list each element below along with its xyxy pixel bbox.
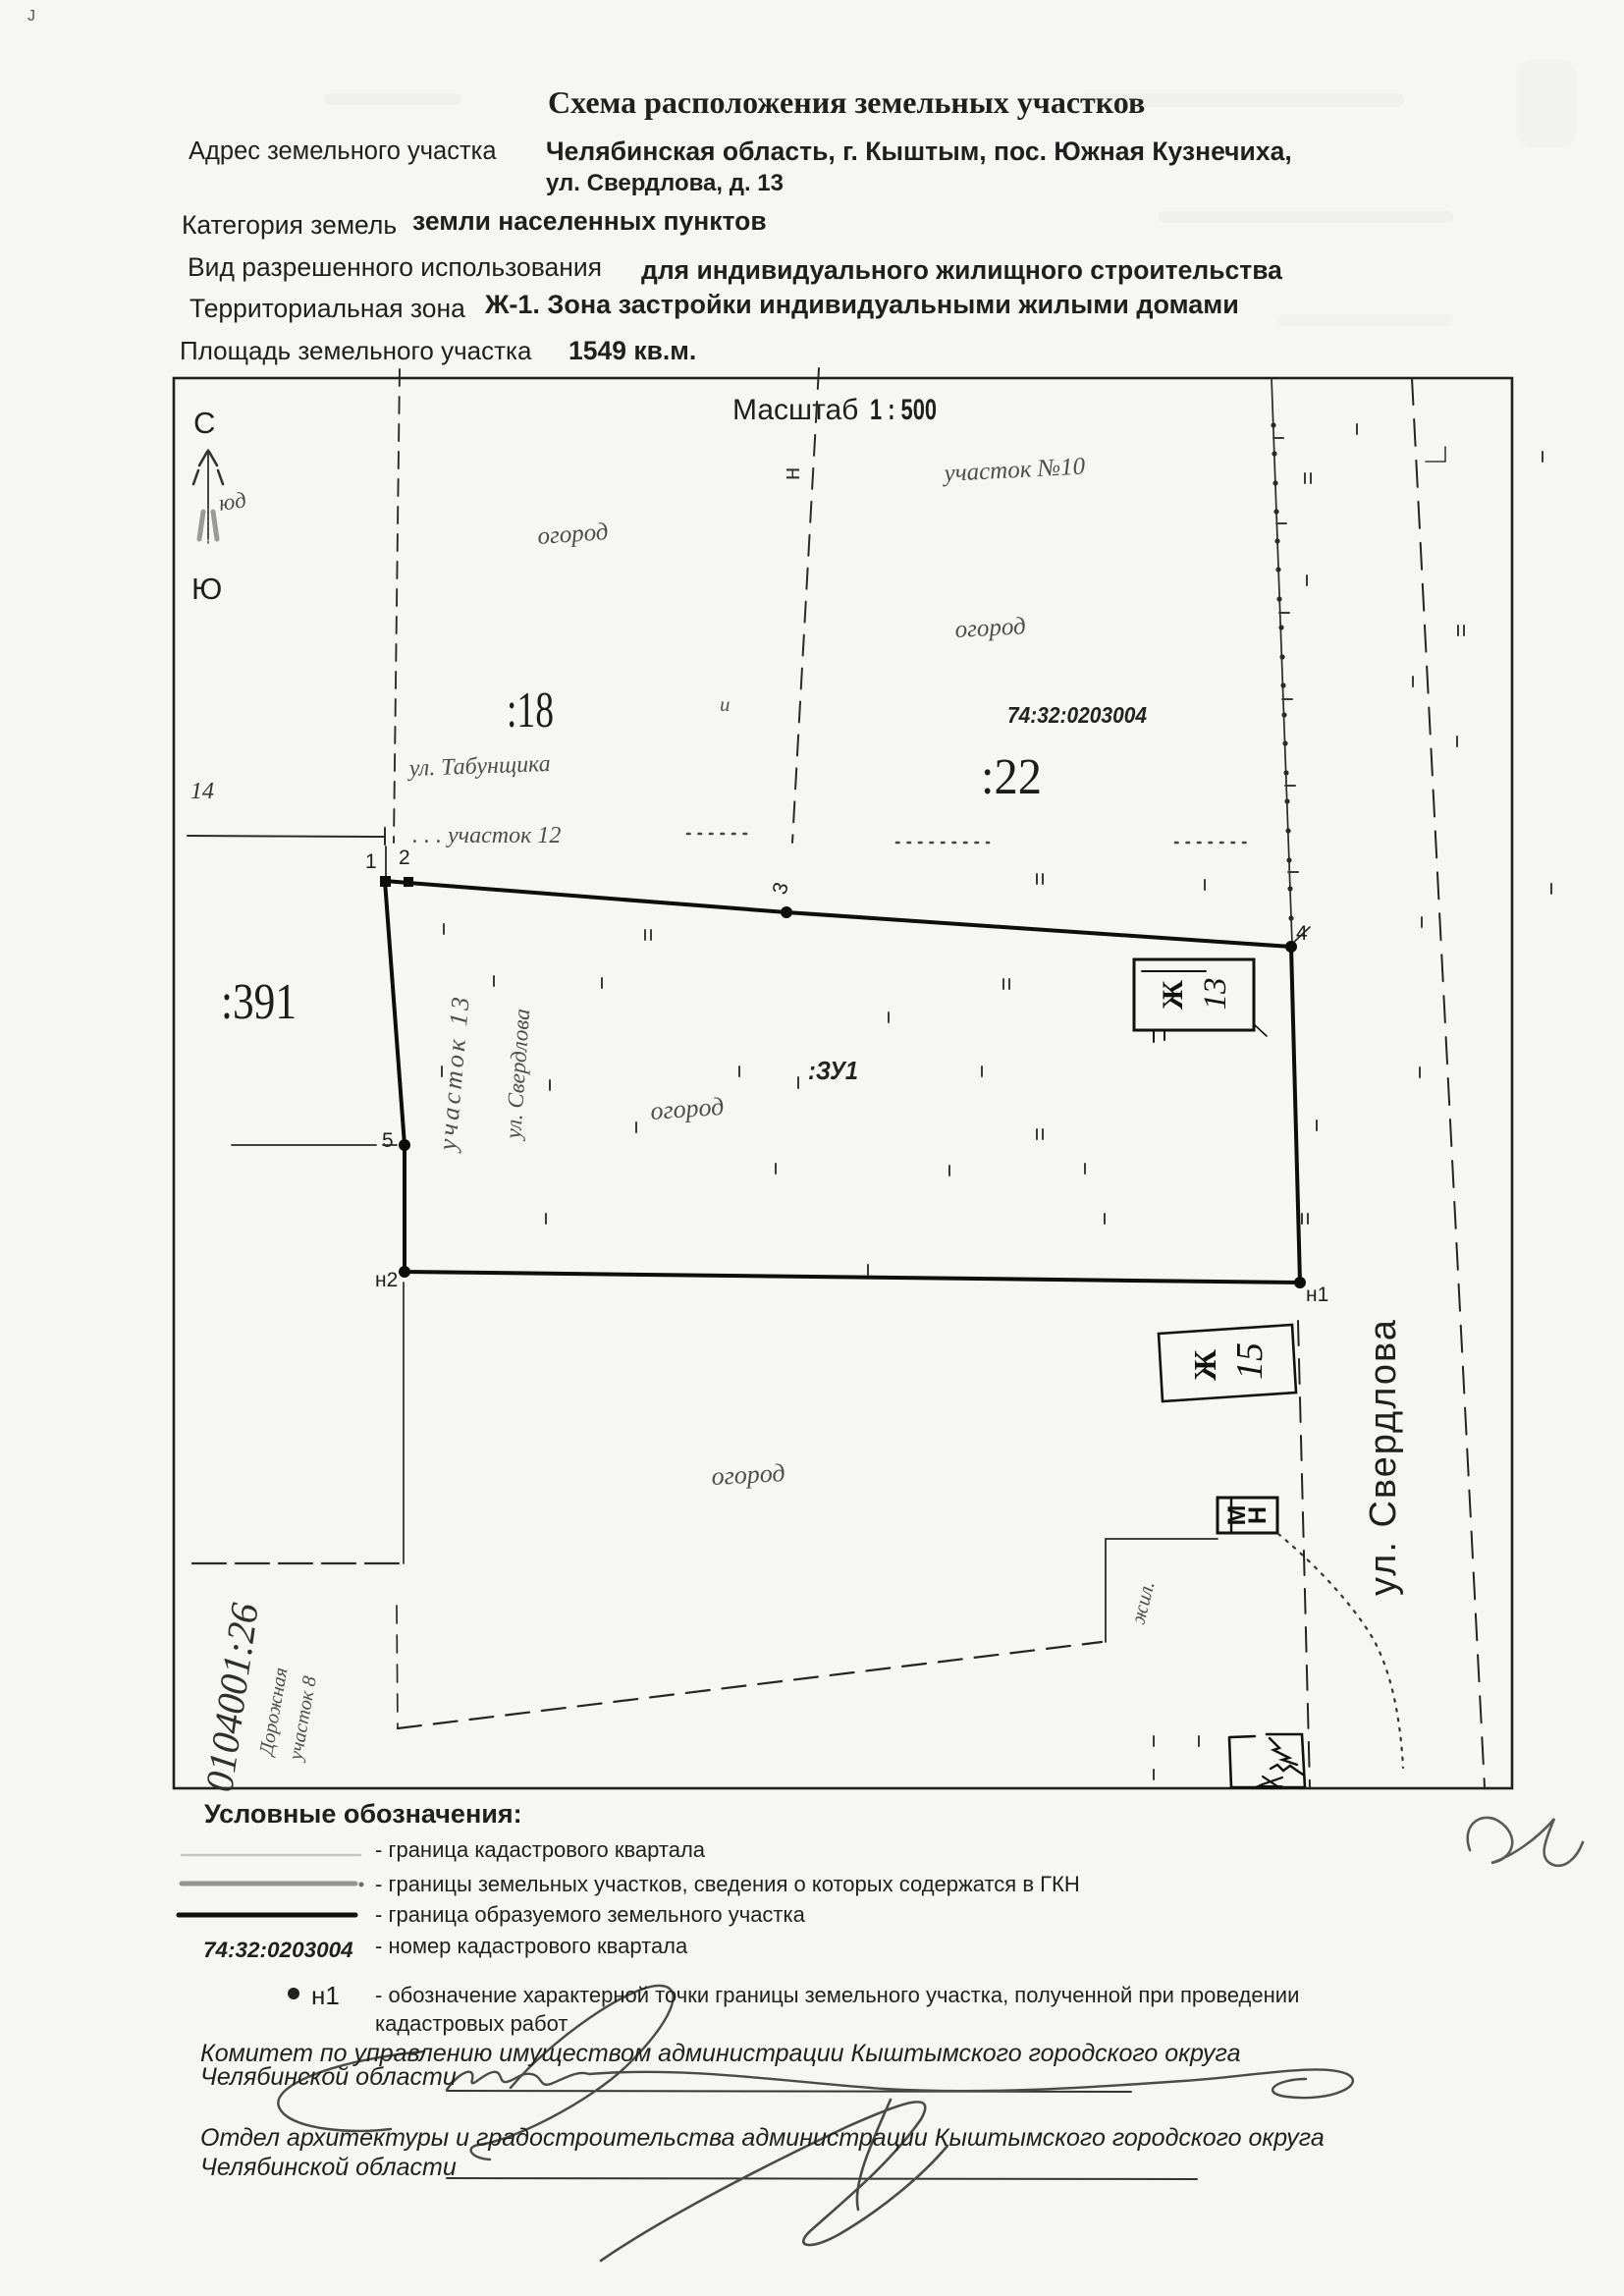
svg-text:участок 8: участок 8 <box>285 1674 321 1764</box>
svg-text:и: и <box>720 692 731 716</box>
svg-text:н: н <box>779 467 805 480</box>
svg-text:огород: огород <box>537 519 610 550</box>
svg-text:5: 5 <box>382 1129 394 1152</box>
svg-text:юд: юд <box>217 487 247 516</box>
svg-text:. . . участок 12: . . . участок 12 <box>412 823 561 848</box>
svg-text:13: 13 <box>1198 978 1233 1011</box>
svg-text:0104001:26: 0104001:26 <box>196 1601 266 1795</box>
svg-text:Ж: Ж <box>1157 980 1189 1010</box>
svg-text::22: :22 <box>981 749 1042 805</box>
svg-text:14: 14 <box>190 779 214 804</box>
svg-text::ЗУ1: :ЗУ1 <box>808 1056 858 1085</box>
svg-text:Н: Н <box>1244 1506 1272 1524</box>
svg-text:Ж: Ж <box>1187 1349 1222 1381</box>
svg-text:участок 13: участок 13 <box>433 993 475 1155</box>
svg-text:1: 1 <box>365 850 377 873</box>
svg-text:3: 3 <box>769 880 793 897</box>
svg-text:Масштаб: Масштаб <box>732 394 858 426</box>
svg-text:н1: н1 <box>1306 1284 1328 1306</box>
svg-text:2: 2 <box>399 847 410 869</box>
svg-text::391: :391 <box>221 974 297 1030</box>
svg-text:Ю: Ю <box>191 572 222 606</box>
svg-text:огород: огород <box>649 1092 725 1125</box>
svg-text:ул. Свердлова: ул. Свердлова <box>501 1008 534 1141</box>
svg-text:огород: огород <box>711 1458 785 1491</box>
svg-text:74:32:0203004: 74:32:0203004 <box>1007 702 1147 728</box>
svg-text:4: 4 <box>1296 922 1308 945</box>
svg-text:ул. Свердлова: ул. Свердлова <box>1363 1318 1404 1596</box>
svg-text:С: С <box>193 406 215 440</box>
svg-text:15: 15 <box>1229 1342 1271 1380</box>
svg-text:1 : 500: 1 : 500 <box>870 394 937 426</box>
svg-text:жил.: жил. <box>1126 1578 1160 1626</box>
svg-text:н2: н2 <box>375 1269 398 1291</box>
svg-text::18: :18 <box>507 683 554 738</box>
svg-text:ул. Табунщика: ул. Табунщика <box>406 751 551 782</box>
svg-text:огород: огород <box>954 613 1026 643</box>
svg-text:участок №10: участок №10 <box>941 453 1086 487</box>
